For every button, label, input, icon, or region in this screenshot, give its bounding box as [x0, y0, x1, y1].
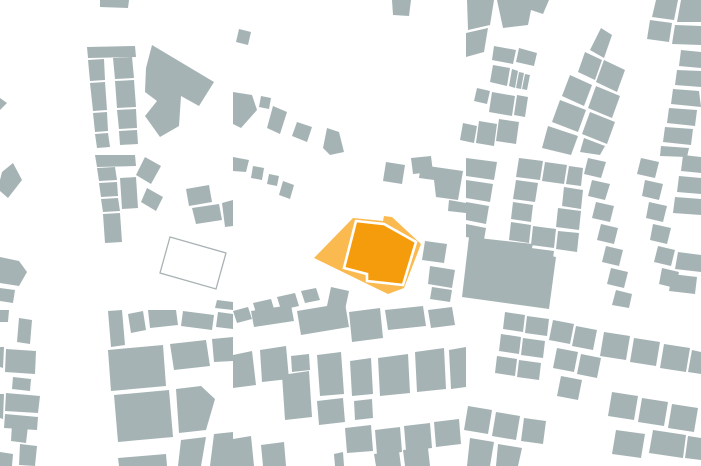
building-footprint — [677, 176, 701, 194]
building-footprint — [513, 180, 538, 202]
building-footprint — [383, 162, 405, 184]
building-footprint — [566, 166, 583, 186]
building-footprint — [0, 288, 15, 303]
building-footprint — [170, 340, 210, 370]
building-footprint — [422, 241, 447, 263]
site-plan-map — [0, 0, 701, 466]
building-footprint — [97, 167, 117, 181]
building-footprint — [259, 96, 271, 109]
building-footprint — [88, 59, 105, 81]
building-footprint — [103, 213, 122, 243]
building-footprint — [675, 70, 701, 87]
building-footprint — [120, 177, 138, 209]
building-footprint — [542, 162, 567, 184]
building-footprint — [652, 0, 678, 20]
building-footprint — [669, 274, 697, 294]
building-footprint — [95, 155, 136, 167]
building-footprint — [403, 448, 430, 466]
building-footprint — [516, 158, 543, 180]
building-footprint — [677, 0, 701, 22]
building-footprint — [317, 352, 344, 396]
building-footprint — [404, 423, 432, 451]
building-footprint — [345, 425, 373, 453]
building-footprint — [681, 155, 701, 173]
building-footprint — [434, 419, 461, 447]
building-footprint — [673, 197, 701, 215]
building-footprint — [113, 57, 134, 79]
building-footprint — [128, 311, 146, 333]
building-footprint — [385, 306, 426, 330]
building-footprint — [216, 312, 233, 329]
building-footprint — [100, 0, 129, 8]
building-footprint — [0, 310, 9, 322]
building-footprint — [495, 356, 517, 376]
building-footprint — [517, 360, 541, 380]
building-footprint — [415, 348, 446, 392]
building-footprint — [212, 337, 233, 362]
building-footprint — [668, 404, 698, 432]
building-footprint — [600, 332, 630, 360]
building-footprint — [261, 442, 286, 466]
building-footprint — [17, 318, 32, 344]
building-footprint — [562, 187, 583, 209]
building-footprint — [467, 438, 494, 466]
building-footprint — [556, 231, 579, 252]
building-footprint — [557, 376, 582, 400]
building-footprint — [660, 344, 690, 372]
building-footprint — [492, 412, 520, 440]
building-footprint — [511, 202, 533, 222]
building-footprint — [0, 452, 13, 466]
building-footprint — [11, 424, 28, 443]
building-footprint — [577, 354, 601, 378]
building-footprint — [291, 354, 310, 372]
building-footprint — [12, 377, 31, 391]
building-footprint — [630, 338, 660, 366]
building-footprint — [108, 310, 125, 347]
building-footprint — [428, 307, 455, 328]
building-footprint — [675, 252, 701, 272]
building-footprint — [114, 390, 173, 442]
building-footprint — [507, 244, 529, 262]
building-footprint — [334, 452, 344, 466]
building-footprint — [392, 0, 411, 16]
building-footprint — [649, 430, 686, 458]
building-footprint — [282, 371, 312, 420]
building-footprint — [647, 20, 672, 42]
building-footprint — [5, 393, 40, 413]
building-footprint — [19, 444, 37, 466]
building-footprint — [679, 50, 701, 68]
building-footprint — [476, 121, 497, 146]
building-footprint — [117, 109, 137, 129]
building-footprint — [99, 182, 118, 197]
building-footprint — [148, 310, 178, 328]
building-footprint — [233, 351, 256, 388]
building-footprint — [509, 222, 531, 243]
building-footprint — [90, 82, 107, 111]
building-footprint — [95, 133, 110, 148]
building-footprint — [5, 349, 36, 374]
building-footprint — [553, 348, 578, 372]
building-footprint — [460, 123, 477, 143]
building-footprint — [525, 316, 549, 336]
building-footprint — [556, 208, 581, 230]
building-footprint — [251, 166, 264, 180]
building-footprint — [350, 358, 373, 396]
building-footprint — [119, 130, 138, 145]
building-footprint — [449, 347, 466, 389]
building-footprint — [267, 174, 279, 186]
building-footprint — [572, 326, 597, 350]
building-footprint — [529, 248, 554, 266]
building-footprint — [108, 345, 166, 391]
building-footprint — [115, 80, 136, 108]
building-footprint — [663, 127, 693, 145]
building-footprint — [349, 308, 383, 342]
building-footprint — [521, 338, 545, 358]
building-footprint — [87, 46, 136, 58]
building-footprint — [233, 436, 254, 466]
building-footprint — [499, 334, 521, 354]
building-footprint — [496, 119, 519, 144]
building-footprint — [101, 198, 120, 212]
building-footprint — [608, 392, 638, 420]
building-footprint — [375, 427, 402, 455]
building-footprint — [317, 398, 345, 425]
building-footprint — [672, 25, 701, 45]
building-footprint — [667, 108, 697, 126]
building-footprint — [503, 312, 525, 332]
building-footprint — [378, 354, 410, 396]
building-footprint — [489, 92, 515, 116]
building-footprint — [521, 418, 546, 444]
building-footprint — [93, 112, 108, 132]
building-footprint — [549, 320, 574, 344]
building-footprint — [638, 398, 668, 426]
building-footprint — [354, 399, 373, 420]
building-footprint — [612, 430, 645, 458]
building-footprint — [464, 406, 492, 434]
building-footprint — [671, 89, 701, 107]
site-plan-figure — [0, 0, 701, 466]
building-footprint — [531, 226, 556, 248]
